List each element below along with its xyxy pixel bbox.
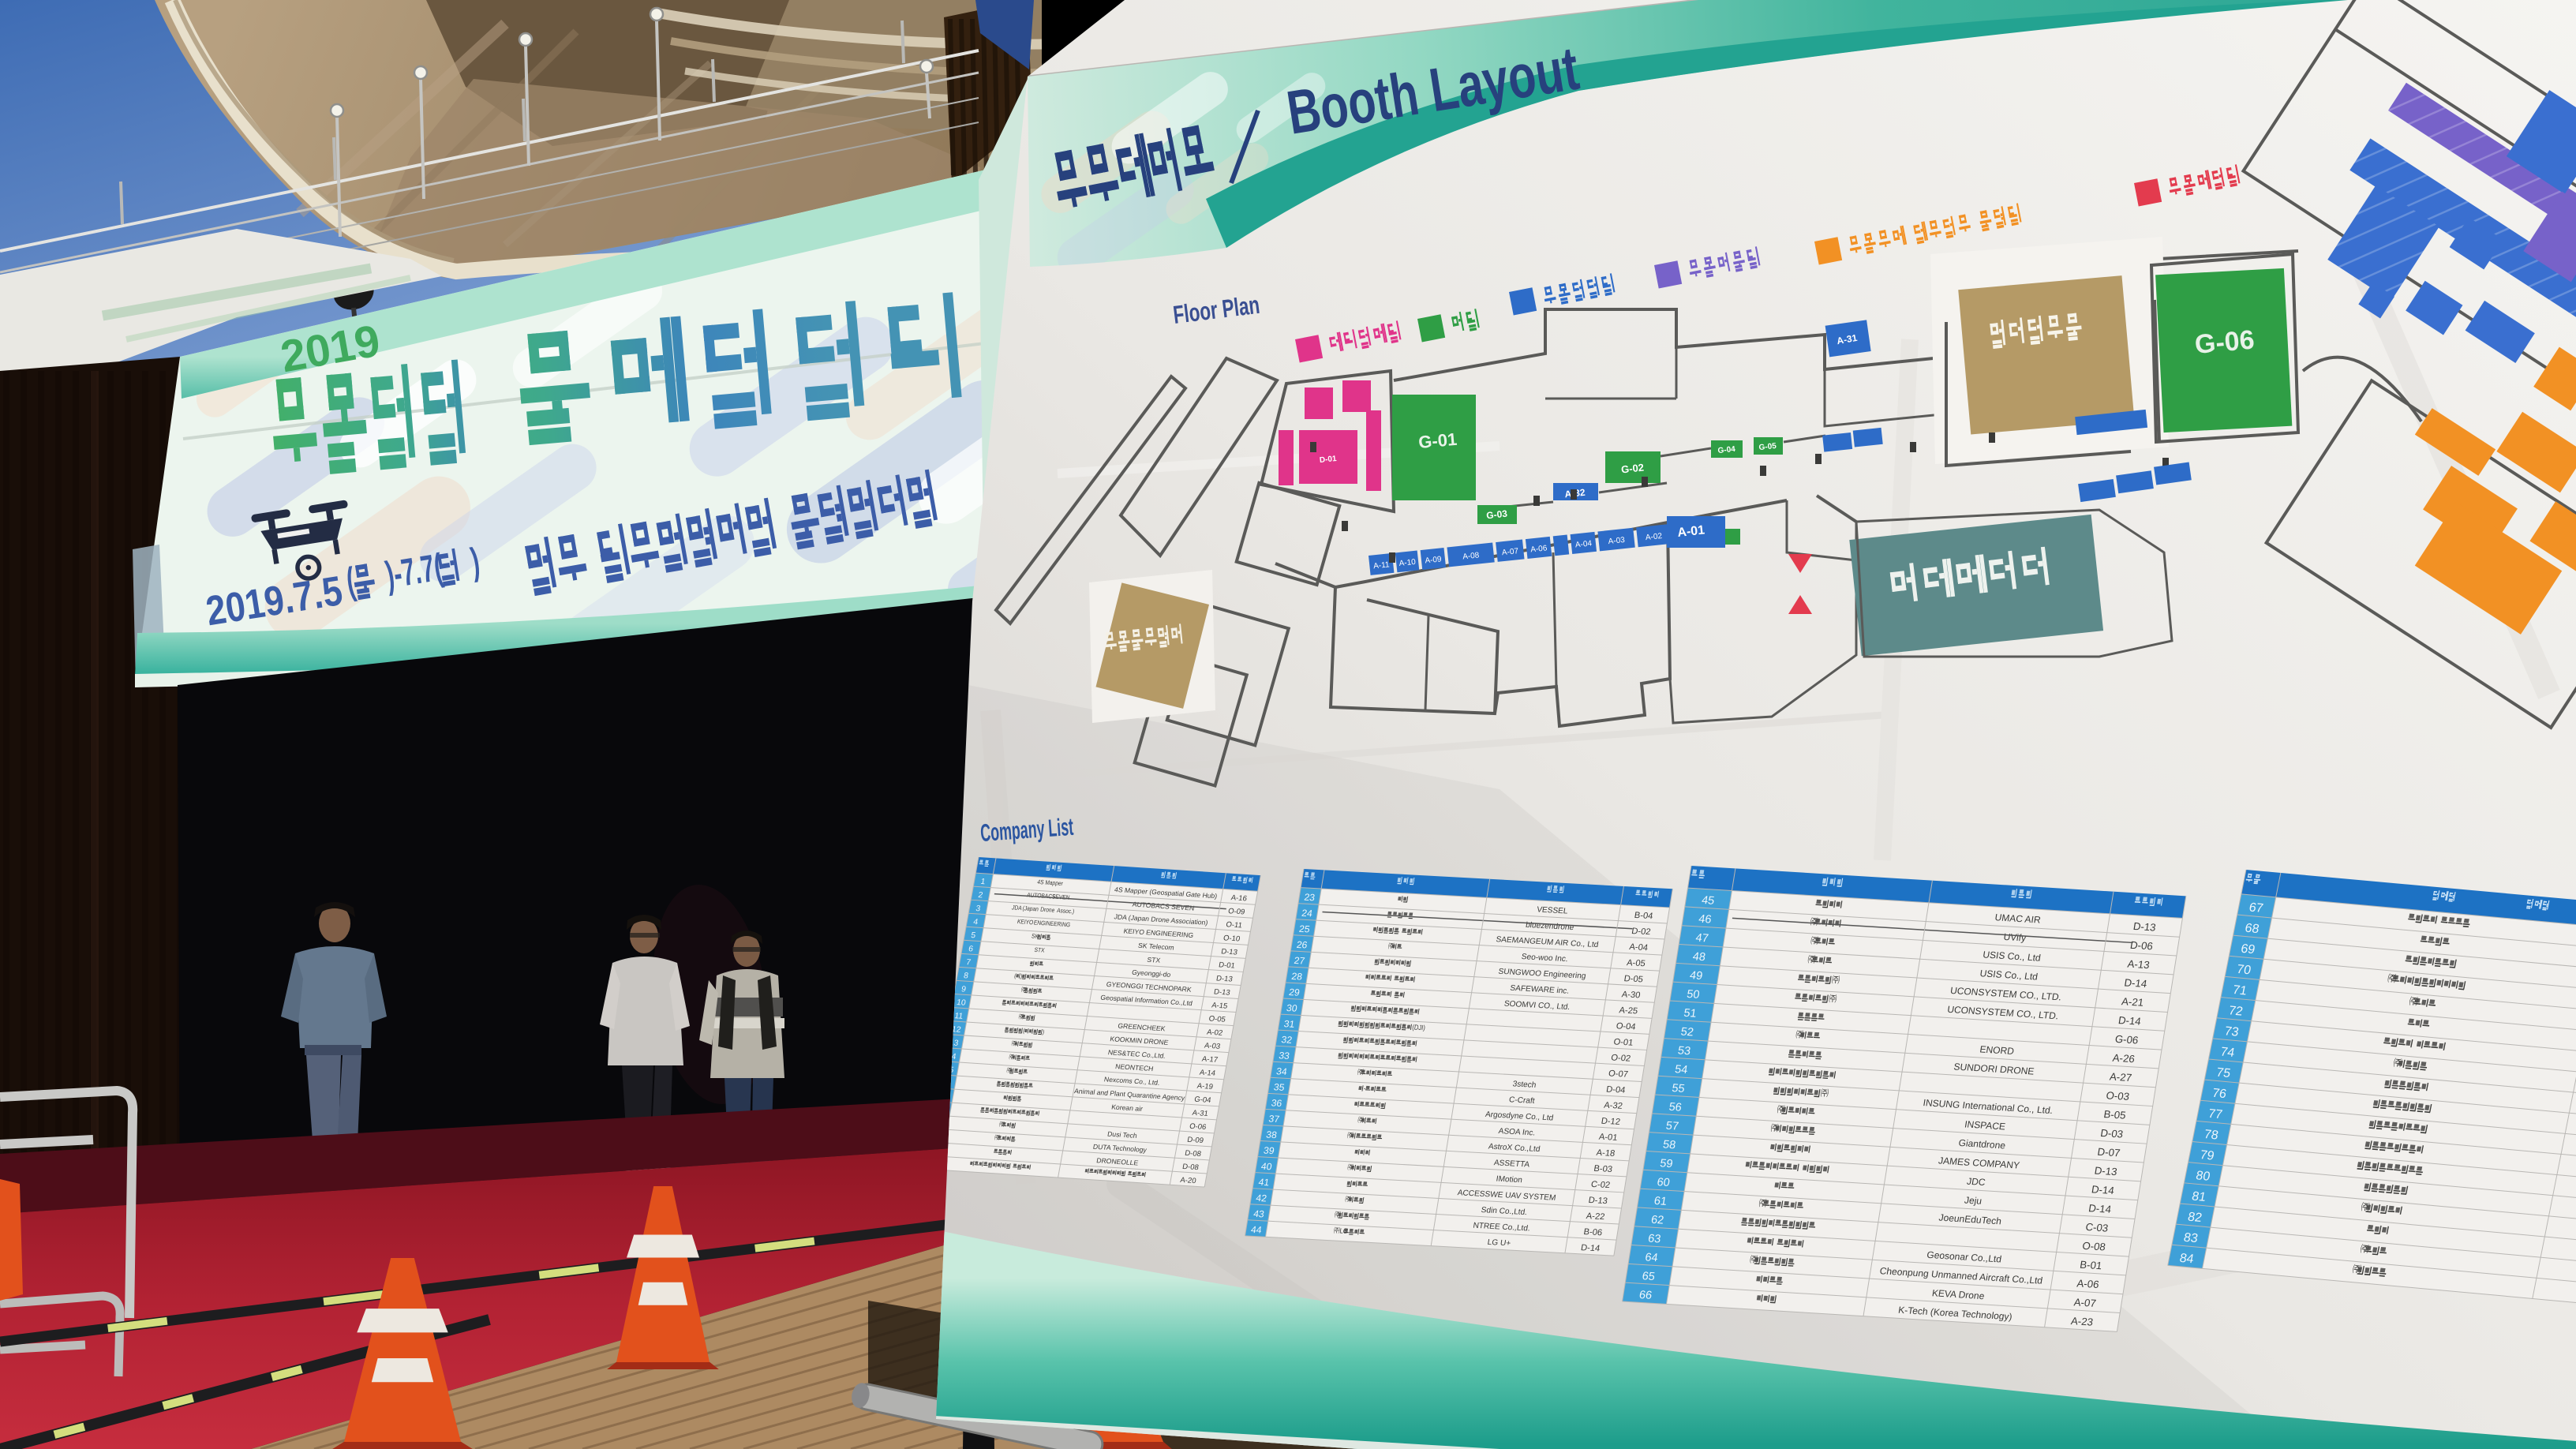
svg-text:D-13: D-13 — [1215, 974, 1233, 983]
svg-text:50: 50 — [1686, 988, 1700, 1002]
svg-text:Assoc.): Assoc.) — [1056, 907, 1075, 915]
svg-text:(Japan: (Japan — [1022, 904, 1039, 913]
svg-text:63: 63 — [1647, 1233, 1661, 1246]
svg-text:28: 28 — [1290, 971, 1303, 983]
svg-text:B-05: B-05 — [2102, 1108, 2126, 1121]
svg-text:A-01: A-01 — [1598, 1133, 1618, 1143]
svg-text:73: 73 — [2223, 1024, 2240, 1039]
svg-text:B-01: B-01 — [2079, 1259, 2102, 1272]
svg-text:56: 56 — [1668, 1101, 1682, 1114]
svg-text:D-13: D-13 — [1220, 947, 1237, 957]
svg-text:A-03: A-03 — [1608, 536, 1626, 546]
svg-text:11: 11 — [953, 1012, 964, 1021]
svg-text:A-13: A-13 — [2127, 958, 2151, 972]
svg-text:B-06: B-06 — [1583, 1227, 1603, 1237]
svg-text:G-05: G-05 — [1758, 442, 1777, 452]
svg-text:77: 77 — [2207, 1107, 2223, 1121]
svg-text:24: 24 — [1301, 908, 1313, 919]
svg-text:D-07: D-07 — [2097, 1146, 2121, 1159]
svg-text:81: 81 — [2191, 1190, 2207, 1204]
svg-text:39: 39 — [1263, 1145, 1275, 1157]
svg-text:48: 48 — [1692, 950, 1706, 964]
svg-text:29: 29 — [1288, 987, 1301, 998]
svg-text:10: 10 — [956, 998, 967, 1008]
svg-text:A-25: A-25 — [1619, 1005, 1638, 1016]
svg-text:61: 61 — [1653, 1195, 1668, 1208]
svg-text:O-05: O-05 — [1208, 1015, 1226, 1024]
svg-text:D-13: D-13 — [2094, 1165, 2118, 1178]
svg-text:A-16: A-16 — [1230, 893, 1248, 903]
svg-text:66: 66 — [1638, 1289, 1653, 1302]
svg-text:ENORD: ENORD — [1979, 1043, 2016, 1057]
svg-text:D-09: D-09 — [1186, 1136, 1204, 1145]
svg-text:A-27: A-27 — [2109, 1071, 2132, 1084]
svg-text:A-03: A-03 — [1204, 1042, 1221, 1051]
svg-text:D-01: D-01 — [1218, 960, 1235, 970]
svg-text:O-06: O-06 — [1189, 1122, 1207, 1132]
svg-text:65: 65 — [1642, 1270, 1656, 1283]
svg-text:D-02: D-02 — [1631, 927, 1651, 937]
svg-text:O-07: O-07 — [1608, 1069, 1629, 1080]
svg-text:D-12: D-12 — [1601, 1117, 1621, 1127]
svg-text:A-02: A-02 — [1206, 1028, 1223, 1038]
svg-text:76: 76 — [2211, 1087, 2228, 1101]
svg-text:STX: STX — [1034, 945, 1046, 953]
svg-text:23: 23 — [1303, 892, 1316, 904]
svg-text:54: 54 — [1674, 1063, 1688, 1076]
svg-text:O-08: O-08 — [2081, 1240, 2106, 1253]
svg-text:A-26: A-26 — [2112, 1052, 2136, 1065]
svg-text:A-02: A-02 — [1645, 532, 1663, 542]
svg-text:A-01: A-01 — [1677, 523, 1705, 540]
svg-text:26: 26 — [1296, 939, 1309, 951]
svg-text:G-01: G-01 — [1417, 429, 1458, 452]
svg-text:D-14: D-14 — [2117, 1014, 2142, 1028]
svg-text:O-02: O-02 — [1610, 1053, 1631, 1063]
svg-text:35: 35 — [1273, 1081, 1286, 1093]
svg-text:A-20: A-20 — [1179, 1176, 1196, 1185]
svg-text:O-01: O-01 — [1613, 1037, 1634, 1047]
svg-text:STX: STX — [1147, 956, 1162, 964]
svg-text:A-18: A-18 — [1596, 1148, 1616, 1159]
svg-text:38: 38 — [1265, 1129, 1278, 1141]
svg-text:A-04: A-04 — [1629, 942, 1649, 953]
svg-text:A-14: A-14 — [1199, 1069, 1217, 1078]
svg-text:71: 71 — [2231, 983, 2248, 998]
svg-text:68: 68 — [2244, 922, 2260, 936]
svg-text:A-19: A-19 — [1196, 1082, 1214, 1091]
svg-text:G-02: G-02 — [1620, 462, 1644, 476]
svg-text:45: 45 — [1701, 894, 1715, 908]
svg-text:A-09: A-09 — [1425, 555, 1443, 565]
svg-text:)-7.7(: )-7.7( — [383, 545, 446, 597]
svg-text:A-07: A-07 — [2073, 1296, 2097, 1309]
svg-text:C-03: C-03 — [2085, 1221, 2110, 1234]
svg-text:41: 41 — [1258, 1177, 1271, 1189]
svg-text:36: 36 — [1271, 1097, 1283, 1109]
svg-text:D-14: D-14 — [2091, 1183, 2115, 1196]
svg-text:A-17: A-17 — [1201, 1055, 1219, 1065]
svg-text:C-02: C-02 — [1590, 1180, 1611, 1190]
svg-text:O-11: O-11 — [1226, 920, 1243, 930]
svg-text:D-01: D-01 — [1319, 455, 1337, 465]
svg-text:A-04: A-04 — [1574, 539, 1593, 549]
svg-text:A-06: A-06 — [2076, 1278, 2100, 1291]
svg-text:43: 43 — [1252, 1208, 1265, 1220]
svg-text:42: 42 — [1255, 1193, 1267, 1204]
svg-text:LG U+: LG U+ — [1487, 1238, 1511, 1248]
svg-text:D-13: D-13 — [1588, 1196, 1608, 1206]
svg-text:44: 44 — [1250, 1224, 1263, 1236]
svg-text:47: 47 — [1694, 932, 1709, 945]
svg-text:O-04: O-04 — [1616, 1021, 1637, 1032]
svg-text:IMotion: IMotion — [1496, 1175, 1523, 1185]
svg-text:75: 75 — [2215, 1066, 2232, 1080]
svg-text:D-03: D-03 — [2099, 1127, 2124, 1140]
svg-text:A-15: A-15 — [1211, 1002, 1228, 1011]
svg-text:67: 67 — [2248, 901, 2264, 915]
svg-text:KEIYO: KEIYO — [1017, 918, 1034, 927]
svg-text:G-04: G-04 — [1193, 1095, 1212, 1105]
svg-text:34: 34 — [1275, 1065, 1288, 1077]
svg-text:82: 82 — [2187, 1211, 2203, 1225]
svg-text:D-06: D-06 — [2129, 939, 2154, 953]
svg-text:G-03: G-03 — [1486, 508, 1508, 522]
svg-text:G-04: G-04 — [1717, 445, 1736, 455]
svg-text:JDA: JDA — [1011, 904, 1022, 912]
svg-text:25: 25 — [1298, 923, 1311, 935]
svg-text:(DJI): (DJI) — [1412, 1023, 1426, 1032]
svg-text:64: 64 — [1644, 1251, 1658, 1264]
svg-text:27: 27 — [1294, 955, 1306, 967]
svg-text:37: 37 — [1268, 1114, 1281, 1125]
svg-text:B-04: B-04 — [1634, 911, 1653, 921]
svg-text:49: 49 — [1689, 969, 1703, 983]
svg-text:A-07: A-07 — [1501, 547, 1519, 557]
svg-text:84: 84 — [2178, 1252, 2195, 1266]
svg-text:G-06: G-06 — [2114, 1033, 2140, 1046]
svg-text:C-Craft: C-Craft — [1508, 1095, 1535, 1106]
svg-text:O-09: O-09 — [1227, 907, 1245, 916]
svg-text:55: 55 — [1671, 1082, 1685, 1095]
svg-text:A-22: A-22 — [1586, 1211, 1605, 1222]
svg-text:D-13: D-13 — [2132, 920, 2157, 934]
svg-text:A-08: A-08 — [1462, 551, 1481, 561]
svg-text:UVify: UVify — [2003, 931, 2027, 944]
svg-text:40: 40 — [1260, 1161, 1273, 1173]
svg-text:D-05: D-05 — [1623, 974, 1644, 984]
svg-text:A-06: A-06 — [1530, 544, 1548, 554]
svg-text:46: 46 — [1698, 913, 1712, 927]
svg-text:60: 60 — [1656, 1176, 1670, 1189]
svg-text:D-04: D-04 — [1605, 1085, 1626, 1095]
svg-text:O-10: O-10 — [1222, 934, 1241, 943]
svg-text:A-10: A-10 — [1398, 558, 1417, 568]
svg-text:D-13: D-13 — [1213, 987, 1230, 997]
svg-text:A-05: A-05 — [1626, 958, 1646, 968]
svg-text:D-14: D-14 — [1580, 1243, 1601, 1253]
svg-text:Jeju: Jeju — [1964, 1195, 1983, 1207]
svg-text:30: 30 — [1286, 1002, 1298, 1014]
svg-text:51: 51 — [1683, 1007, 1697, 1020]
svg-text:62: 62 — [1650, 1214, 1664, 1227]
svg-text:A-32: A-32 — [1603, 1101, 1623, 1111]
svg-text:D-14: D-14 — [2087, 1202, 2112, 1215]
svg-text:52: 52 — [1680, 1026, 1694, 1039]
svg-text:D-14: D-14 — [2124, 976, 2148, 990]
svg-text:A-31: A-31 — [1192, 1109, 1209, 1118]
svg-text:3stech: 3stech — [1512, 1080, 1537, 1089]
svg-text:72: 72 — [2227, 1004, 2244, 1018]
svg-text:A-21: A-21 — [2121, 995, 2144, 1009]
svg-text:B-03: B-03 — [1593, 1164, 1613, 1174]
svg-text:58: 58 — [1662, 1139, 1676, 1152]
svg-text:69: 69 — [2240, 942, 2256, 957]
svg-text:JDC: JDC — [1966, 1176, 1986, 1188]
svg-text:59: 59 — [1659, 1157, 1673, 1170]
svg-text:A-11: A-11 — [1373, 560, 1391, 571]
svg-text:A-23: A-23 — [2070, 1315, 2094, 1328]
svg-text:33: 33 — [1278, 1050, 1290, 1061]
svg-text:32: 32 — [1281, 1034, 1294, 1046]
svg-text:53: 53 — [1677, 1044, 1691, 1058]
svg-text:57: 57 — [1665, 1120, 1679, 1133]
svg-text:D-08: D-08 — [1184, 1149, 1201, 1159]
svg-text:Mapper: Mapper — [1045, 878, 1065, 887]
svg-text:80: 80 — [2195, 1169, 2211, 1183]
svg-text:A-30: A-30 — [1621, 990, 1641, 1000]
svg-text:VESSEL: VESSEL — [1536, 906, 1568, 916]
svg-text:D-08: D-08 — [1181, 1163, 1199, 1172]
svg-text:O-03: O-03 — [2106, 1089, 2131, 1103]
svg-text:79: 79 — [2199, 1148, 2215, 1163]
svg-text:Drone: Drone — [1040, 905, 1056, 914]
svg-text:SEVEN: SEVEN — [1051, 893, 1070, 901]
svg-text:G-06: G-06 — [2193, 325, 2256, 360]
svg-text:70: 70 — [2236, 963, 2252, 977]
svg-text:31: 31 — [1283, 1018, 1296, 1030]
svg-text:78: 78 — [2203, 1128, 2219, 1142]
svg-text:83: 83 — [2182, 1231, 2199, 1245]
svg-text:74: 74 — [2219, 1046, 2236, 1060]
